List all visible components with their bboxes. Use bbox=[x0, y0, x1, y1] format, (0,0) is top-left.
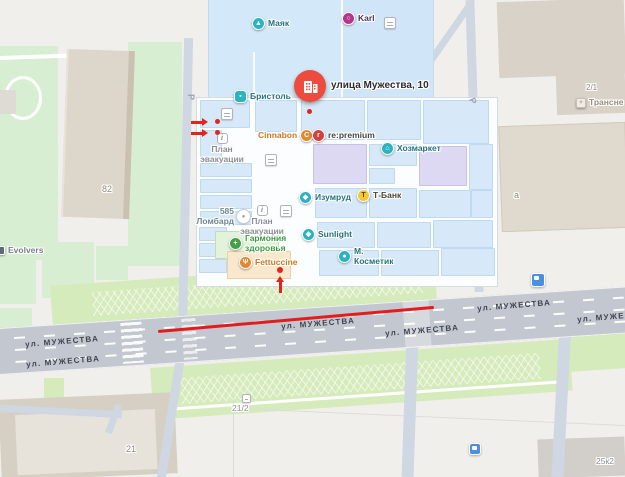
shop-unit bbox=[377, 222, 431, 248]
m-kosmetik-label[interactable]: М. Косметик bbox=[354, 247, 396, 266]
building-number: 21/2 bbox=[232, 403, 249, 413]
khozmarket-label[interactable]: Хозмаркет bbox=[397, 144, 441, 154]
cinnabon-label[interactable]: Cinnabon bbox=[258, 131, 297, 141]
poi-khozmarket[interactable]: ⌂ Хозмаркет bbox=[381, 142, 441, 155]
evolvers-icon[interactable] bbox=[0, 246, 5, 255]
building-number: 2/1 bbox=[586, 83, 597, 92]
transneft-icon[interactable]: + bbox=[576, 98, 586, 108]
park-area bbox=[0, 258, 36, 304]
poi-karl[interactable]: ○ Karl bbox=[342, 12, 375, 25]
shop-unit bbox=[367, 100, 421, 140]
park-area bbox=[128, 42, 182, 266]
building-number: 21 bbox=[126, 444, 136, 454]
khozmarket-icon[interactable]: ⌂ bbox=[381, 142, 394, 155]
bristol-label[interactable]: Бристоль bbox=[250, 92, 291, 102]
re-premium-label[interactable]: re:premium bbox=[328, 131, 375, 141]
gate-icon bbox=[242, 394, 251, 403]
izumrud-icon[interactable]: ◆ bbox=[299, 191, 312, 204]
shop-unit bbox=[419, 190, 471, 218]
roof-vent-icon bbox=[384, 17, 396, 29]
poi-garmonia-zdorovya[interactable]: + Гармония здоровья bbox=[229, 234, 295, 253]
red-arrow-right bbox=[191, 121, 202, 124]
shop-unit bbox=[313, 144, 367, 184]
t-bank-icon[interactable]: Т bbox=[357, 189, 370, 202]
building-number: а bbox=[514, 190, 519, 200]
building-number: 82 bbox=[102, 184, 112, 194]
garmonia-label[interactable]: Гармония здоровья bbox=[245, 234, 295, 253]
pin-address-label: улица Мужества, 10 bbox=[331, 80, 429, 91]
red-dot-marker bbox=[215, 119, 220, 124]
poi-m-kosmetik[interactable]: ● М. Косметик bbox=[338, 247, 396, 266]
shop-unit bbox=[433, 220, 493, 248]
map-canvas[interactable]: ул. МУЖЕСТВА ул. МУЖЕСТВА ул. МУЖЕСТВА у… bbox=[0, 0, 625, 477]
karl-icon[interactable]: ○ bbox=[342, 12, 355, 25]
shop-unit bbox=[471, 190, 493, 218]
bus-stop-icon[interactable] bbox=[531, 273, 545, 287]
transneft-label[interactable]: Трансне bbox=[589, 98, 624, 108]
izumrud-label[interactable]: Изумруд bbox=[315, 193, 351, 203]
mayak-icon[interactable]: ▲ bbox=[252, 17, 265, 30]
entrance-icon bbox=[265, 154, 277, 166]
building-icon bbox=[303, 79, 318, 93]
lawn-southeast bbox=[568, 332, 625, 372]
red-dot-marker bbox=[215, 130, 220, 135]
poi-bristol[interactable]: ▪ Бристоль bbox=[234, 90, 291, 103]
shop-unit bbox=[369, 168, 395, 184]
park-area bbox=[96, 246, 128, 280]
address-pin[interactable] bbox=[294, 70, 326, 102]
bristol-icon[interactable]: ▪ bbox=[234, 90, 247, 103]
pedestrian-crossing bbox=[181, 318, 198, 360]
karl-label[interactable]: Karl bbox=[358, 14, 375, 24]
shop-unit bbox=[200, 179, 252, 193]
poi-fettuccine[interactable]: Ψ Fettuccine bbox=[239, 256, 298, 269]
re-premium-icon[interactable]: r bbox=[312, 129, 325, 142]
poi-evolvers[interactable]: Evolvers bbox=[0, 246, 43, 256]
bus-stop-icon[interactable] bbox=[469, 443, 481, 455]
poi-cinnabon[interactable]: Cinnabon C bbox=[258, 129, 313, 142]
shop-unit bbox=[200, 163, 252, 177]
lombard-585-label[interactable]: 585 Ломбард bbox=[194, 207, 234, 226]
shop-unit bbox=[199, 259, 227, 273]
poi-mayak[interactable]: ▲ Маяк bbox=[252, 17, 289, 30]
plan-evakuacii-label[interactable]: План эвакуации bbox=[198, 145, 246, 164]
m-kosmetik-icon[interactable]: ● bbox=[338, 250, 351, 263]
sunlight-label[interactable]: Sunlight bbox=[318, 230, 352, 240]
building-a bbox=[498, 122, 625, 232]
poi-sunlight[interactable]: ◆ Sunlight bbox=[302, 228, 352, 241]
poi-plan-evakuacii-1[interactable]: i План эвакуации bbox=[198, 133, 246, 164]
shop-unit bbox=[255, 100, 297, 132]
shop-unit bbox=[469, 144, 493, 190]
pin-anchor-dot bbox=[307, 109, 312, 114]
parking-marker: Р bbox=[186, 94, 196, 100]
poi-transneft[interactable]: + Трансне bbox=[576, 98, 624, 108]
fettuccine-label[interactable]: Fettuccine bbox=[255, 258, 298, 268]
poi-plan-evakuacii-2[interactable]: i План эвакуации bbox=[238, 205, 286, 236]
plan-evakuacii-label[interactable]: План эвакуации bbox=[238, 217, 286, 236]
red-arrow-right bbox=[191, 132, 202, 135]
building-82 bbox=[61, 49, 135, 219]
building-number: 25к2 bbox=[596, 456, 614, 466]
poi-re-premium[interactable]: r re:premium bbox=[312, 129, 375, 142]
entrance-icon bbox=[221, 108, 233, 120]
t-bank-label[interactable]: Т-Банк bbox=[373, 191, 401, 201]
garmonia-icon[interactable]: + bbox=[229, 237, 242, 250]
poi-t-bank[interactable]: Т Т-Банк bbox=[357, 189, 401, 202]
fettuccine-icon[interactable]: Ψ bbox=[239, 256, 252, 269]
building-21 bbox=[0, 392, 178, 477]
building-21-inner bbox=[15, 409, 157, 475]
red-dot-marker bbox=[277, 267, 283, 273]
shop-unit bbox=[441, 248, 495, 276]
poi-izumrud[interactable]: ◆ Изумруд bbox=[299, 191, 351, 204]
plan-evakuacii-icon[interactable]: i bbox=[257, 205, 268, 216]
evolvers-label[interactable]: Evolvers bbox=[8, 246, 43, 256]
pedestrian-crossing bbox=[120, 322, 144, 364]
sunlight-icon[interactable]: ◆ bbox=[302, 228, 315, 241]
mayak-label[interactable]: Маяк bbox=[268, 19, 289, 29]
pin-balloon[interactable] bbox=[294, 70, 326, 102]
red-arrow-up bbox=[279, 282, 282, 293]
shop-unit bbox=[423, 100, 489, 144]
building-small bbox=[0, 90, 16, 114]
